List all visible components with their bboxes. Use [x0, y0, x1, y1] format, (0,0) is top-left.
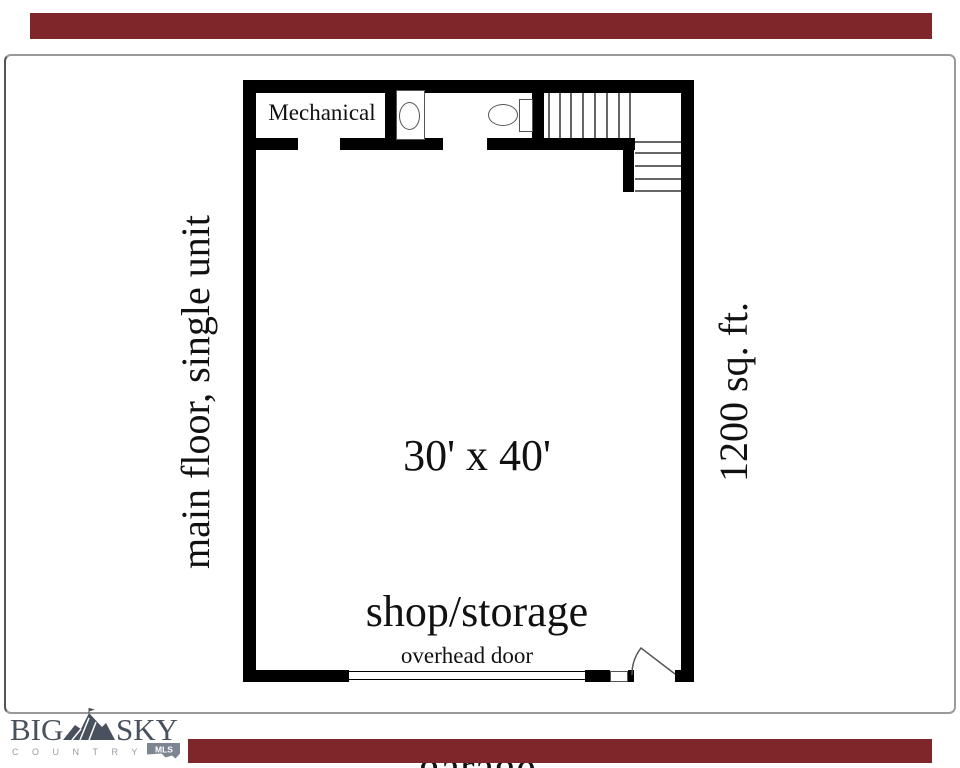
stair-tread: [582, 93, 584, 138]
overhead-door-label: overhead door: [357, 643, 577, 669]
logo-word-sky: SKY: [116, 712, 178, 747]
square-footage-label: 1200 sq. ft.: [712, 277, 756, 507]
stair-tread: [635, 152, 681, 154]
wall-right: [681, 80, 694, 682]
bottom-banner-bar: [188, 739, 932, 763]
wall-top: [243, 80, 694, 93]
garage-room-label: 30' x 40' shop/storage garage: [327, 326, 627, 768]
big-sky-mls-logo: BIG SKY COUNTRY MLS: [8, 706, 192, 768]
stair-tread: [570, 93, 572, 138]
logo-badge-mls: MLS: [155, 745, 173, 755]
stair-tread: [594, 93, 596, 138]
stair-tread: [606, 93, 608, 138]
garage-use-label: shop/storage: [327, 586, 627, 638]
stair-tread: [635, 190, 681, 192]
mls-badge: MLS: [147, 743, 180, 759]
wall-interior-stairs: [487, 138, 635, 150]
stair-tread: [635, 178, 681, 180]
top-banner-bar: [30, 13, 932, 39]
logo-tagline-country: COUNTRY: [12, 747, 151, 757]
wall-interior-mechanical-left: [250, 138, 298, 150]
sink-icon: [488, 104, 518, 126]
wall-bathroom-right: [532, 92, 544, 150]
floor-plan-page: Mechanical 30' x 40' shop/storage garage…: [0, 0, 960, 768]
mechanical-room-label: Mechanical: [258, 100, 386, 126]
stair-tread: [559, 93, 561, 138]
stair-tread: [618, 93, 620, 138]
stair-tread: [635, 141, 681, 143]
toilet-bowl-icon: [399, 102, 420, 130]
sink-counter-icon: [519, 99, 533, 132]
logo-word-big: BIG: [10, 712, 63, 747]
floor-title-label: main floor, single unit: [174, 182, 218, 602]
stair-tread: [548, 93, 550, 138]
stair-tread: [635, 165, 681, 167]
stair-tread: [629, 93, 631, 138]
wall-left: [243, 80, 256, 682]
mountain-icon: [63, 708, 115, 740]
wall-stair-return: [623, 148, 634, 192]
garage-dimensions: 30' x 40': [327, 430, 627, 482]
